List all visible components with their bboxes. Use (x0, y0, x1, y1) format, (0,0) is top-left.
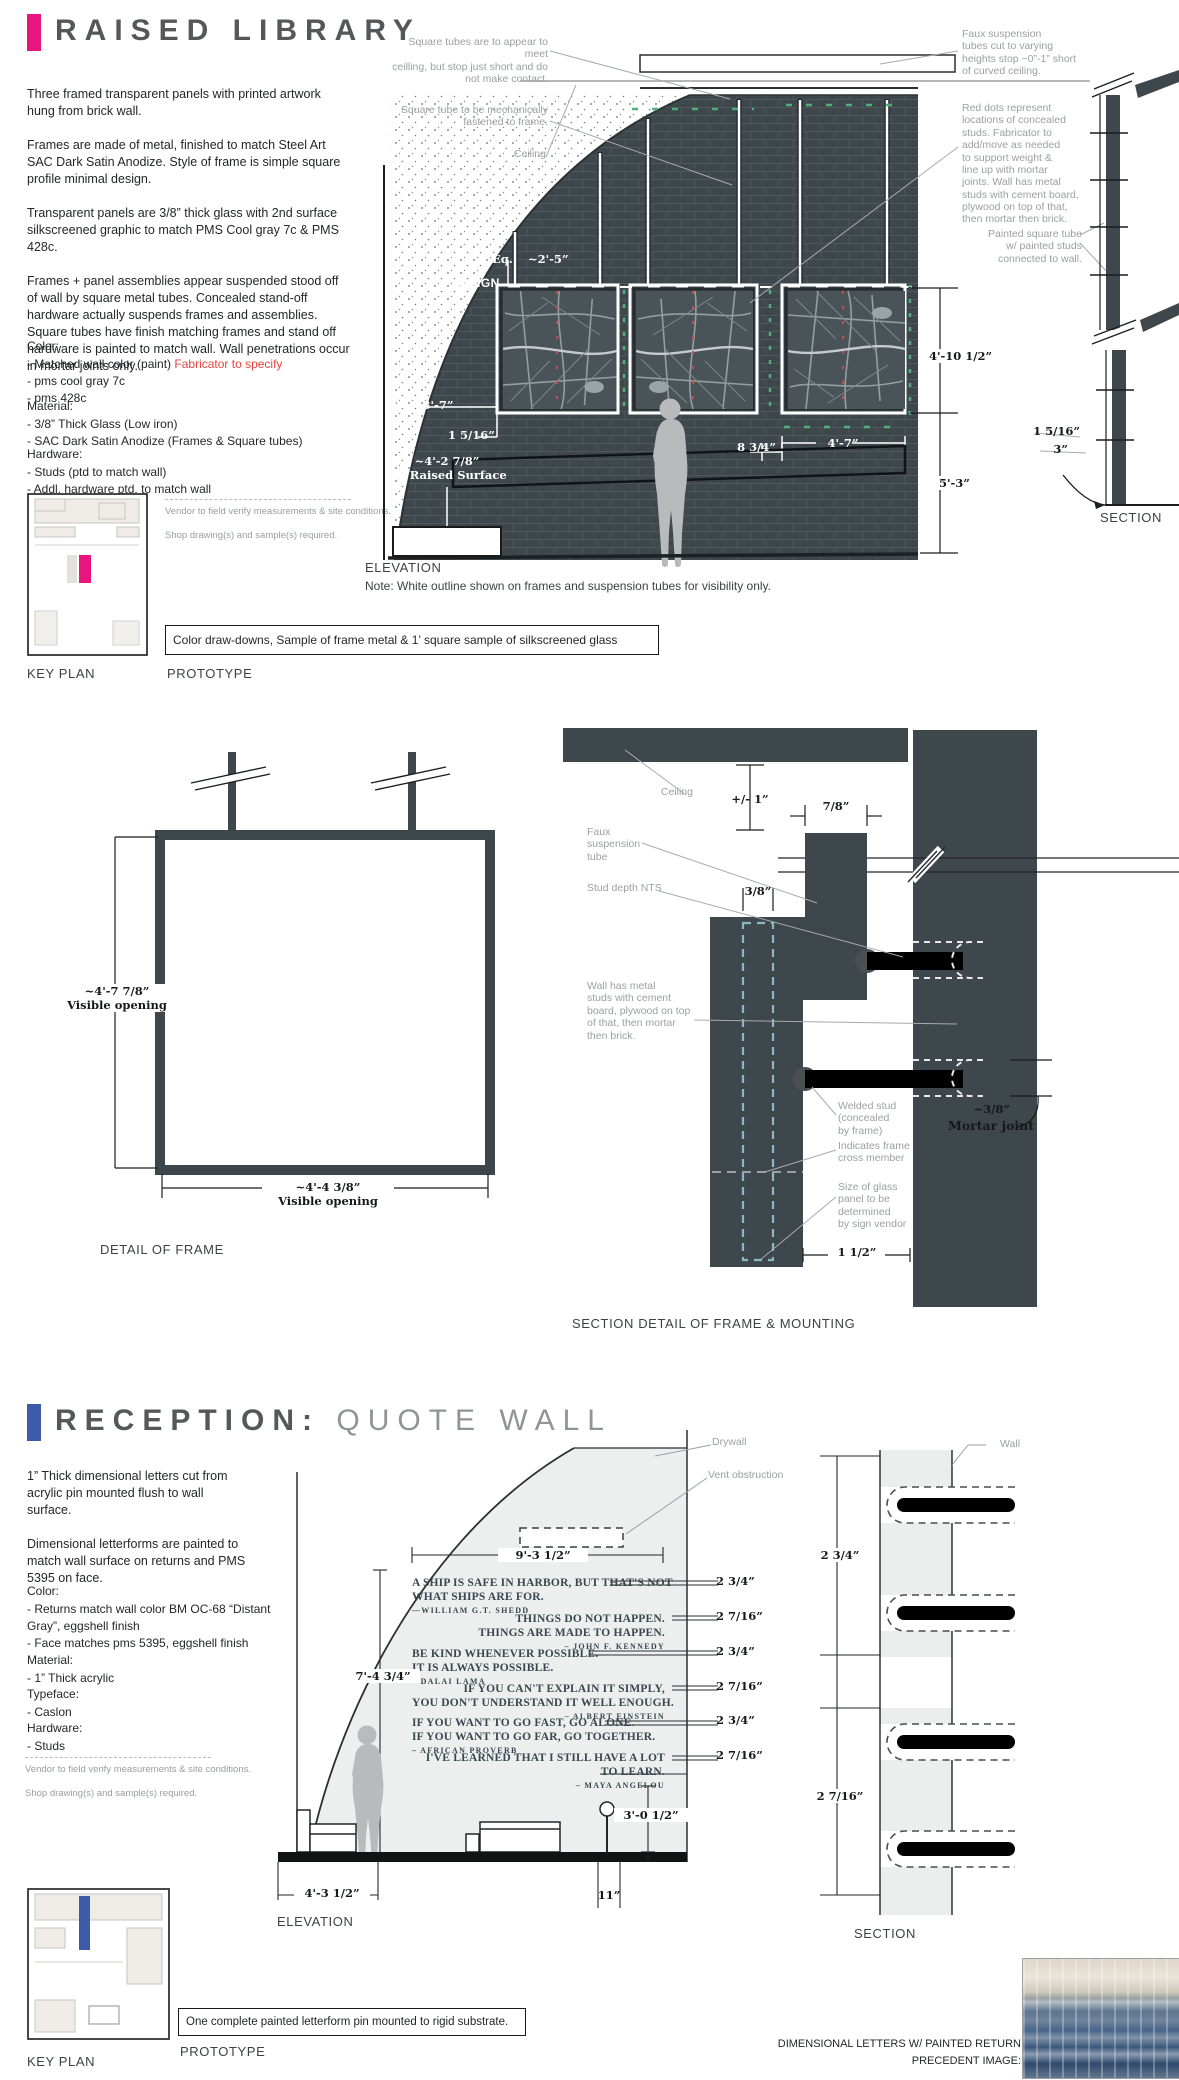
dim-text-height: 7'-4 3/4” (346, 1669, 420, 1683)
annotation-ceiling-2: Ceiling (648, 786, 693, 798)
dim-panel-width: 4'-7” (813, 436, 873, 450)
material-heading: Material: (27, 398, 357, 415)
precedent-caption: DIMENSIONAL LETTERS W/ PAINTED RETURN PR… (700, 2036, 1021, 2069)
quote-height-dim: 2 7/16” (716, 1748, 763, 1762)
material-spec-2: Material: - 1” Thick acrylic (27, 1652, 277, 1687)
vendor-note: Shop drawing(s) and sample(s) required. (25, 1788, 197, 1799)
color-heading: Color: (27, 338, 357, 355)
quote-3: BE KIND WHENEVER POSSIBLE. IT IS ALWAYS … (412, 1647, 665, 1686)
prototype-label-2: PROTOTYPE (180, 2044, 265, 2059)
prototype-label: PROTOTYPE (167, 666, 252, 681)
color-spec: Color: - Matched wall color (paint) Fabr… (27, 338, 357, 407)
annotation-painted-tube: Painted square tube w/ painted studs con… (950, 228, 1082, 265)
elevation-label: ELEVATION (365, 560, 441, 575)
dim-right-width: 11” (594, 1888, 624, 1902)
annotation-faux-tubes: Faux suspension tubes cut to varying hei… (962, 28, 1092, 78)
quote-height-dim: 2 7/16” (716, 1679, 763, 1693)
key-plan-label: KEY PLAN (27, 666, 95, 681)
hardware-item: - Studs (ptd to match wall) (27, 464, 357, 481)
description-paragraph: Dimensional letterforms are painted to m… (27, 1536, 247, 1587)
quote-6: I'VE LEARNED THAT I STILL HAVE A LOT TO … (412, 1751, 665, 1790)
dim-gap: +/- 1” (722, 792, 778, 806)
quote-2: THINGS DO NOT HAPPEN. THINGS ARE MADE TO… (412, 1612, 665, 1651)
dim-tube: 7/8” (810, 799, 862, 813)
color-item: - Matched wall color (paint) Fabricator … (27, 356, 357, 373)
dim-section-depth: 3” (1038, 442, 1068, 456)
mortar-joint-label: Mortar joint (948, 1118, 1020, 1133)
description-paragraph: Frames are made of metal, finished to ma… (27, 137, 351, 188)
divider (165, 499, 351, 500)
frame-cut (710, 917, 803, 1267)
color-item: - pms cool gray 7c (27, 373, 357, 390)
floor-bar (278, 1852, 687, 1862)
quote-height-dim: 2 3/4” (716, 1574, 755, 1588)
annotation-red-dots: Red dots represent locations of conceale… (962, 102, 1112, 226)
frame-outline (160, 835, 490, 1170)
dim-standoff: 1 5/16” (448, 428, 495, 442)
faux-tube-section (640, 55, 955, 72)
quote-5: IF YOU WANT TO GO FAST, GO ALONE. IF YOU… (412, 1716, 665, 1755)
spec-sheet-page: RAISED LIBRARY Three framed transparent … (0, 0, 1179, 2080)
page-title: RAISED LIBRARY (55, 14, 421, 48)
frame-width-dim: ~4'-4 3/8” Visible opening (262, 1180, 394, 1208)
annotation-ceiling: Ceiling (498, 148, 546, 160)
quote-height-dim: 2 7/16” (716, 1609, 763, 1623)
annotation-tubes-meet: Square tubes are to appear to meet ceill… (383, 36, 548, 86)
key-plan-drawing-2 (27, 1888, 170, 2040)
frame-height-dim: ~4'-7 7/8” Visible opening (53, 984, 181, 1012)
elevation-note: Note: White outline shown on frames and … (365, 579, 771, 593)
hardware-spec-2: Hardware: - Studs (27, 1720, 277, 1755)
key-plan-highlight (79, 555, 91, 583)
prototype-note-box-2: One complete painted letterform pin moun… (178, 2008, 526, 2036)
map-panel-1 (497, 285, 618, 413)
dim-raised-height: ~4'-2 7/8” On Raised Surface (385, 454, 509, 482)
quote-wall-section-drawing (800, 1435, 1070, 1945)
annotation-vent: Vent obstruction (708, 1469, 783, 1481)
fabricator-highlight: Fabricator to specify (174, 357, 282, 371)
quote-height-dim: 2 3/4” (716, 1713, 755, 1727)
key-plan-highlight-2 (79, 1896, 90, 1950)
faux-tube-cut (805, 833, 867, 917)
description-paragraph: Transparent panels are 3/8” thick glass … (27, 205, 351, 256)
dim-floor-height: 5'-3” (936, 476, 973, 490)
section-label: SECTION (1100, 510, 1162, 525)
wall-section (913, 730, 1037, 1307)
dim-tube-gap: ~2'-5” (528, 252, 569, 266)
section-accent-bar (27, 14, 41, 51)
dim-standoff-2: 1 1/2” (826, 1245, 888, 1259)
hardware-spec: Hardware: - Studs (ptd to match wall) - … (27, 446, 357, 498)
hardware-heading: Hardware: (27, 446, 357, 463)
vendor-note: Vendor to field verify measurements & si… (25, 1764, 251, 1775)
annotation-welded-stud: Welded stud (concealed by frame) (838, 1100, 918, 1137)
dim-section-bottom: 2 7/16” (808, 1789, 872, 1803)
precedent-photo (1022, 1958, 1179, 2079)
dim-left-width: 4'-3 1/2” (294, 1886, 370, 1900)
key-plan-label-2: KEY PLAN (27, 2054, 95, 2069)
dim-bottom-height: 3'-0 1/2” (614, 1808, 688, 1822)
quote-height-dim: 2 3/4” (716, 1644, 755, 1658)
material-item: - 3/8” Thick Glass (Low iron) (27, 416, 357, 433)
quote-1: A SHIP IS SAFE IN HARBOR, BUT THAT'S NOT… (412, 1576, 665, 1615)
vent-obstruction-dashed (520, 1528, 623, 1547)
map-panel-2 (630, 285, 757, 413)
dim-panel-height: 4'-10 1/2” (926, 349, 995, 363)
mount-detail-label: SECTION DETAIL OF FRAME & MOUNTING (572, 1316, 855, 1331)
description-paragraph: Three framed transparent panels with pri… (27, 86, 351, 120)
annotation-cross-member: Indicates frame cross member (838, 1140, 934, 1165)
annotation-wall: Wall (1000, 1438, 1020, 1450)
dim-section-top: 2 3/4” (812, 1548, 868, 1562)
dim-left-offset: 3'-7” (408, 398, 468, 412)
section-label-2: SECTION (854, 1926, 916, 1941)
annotation-wall-construction: Wall has metal studs with cement board, … (587, 980, 707, 1042)
dim-section-standoff: 1 5/16” (1028, 424, 1080, 438)
vendor-note: Vendor to field verify measurements & si… (165, 506, 391, 517)
dim-eq: Eq. (492, 252, 513, 266)
description-paragraph: 1” Thick dimensional letters cut from ac… (27, 1468, 247, 1519)
vendor-note: Shop drawing(s) and sample(s) required. (165, 530, 337, 541)
annotation-stud-depth: Stud depth NTS (587, 882, 683, 894)
floor-box (393, 527, 501, 556)
typeface-spec: Typeface: - Caslon (27, 1686, 277, 1721)
annotation-glass-size: Size of glass panel to be determined by … (838, 1181, 928, 1231)
quote-4: IF YOU CAN'T EXPLAIN IT SIMPLY, YOU DON'… (412, 1682, 665, 1721)
divider (25, 1757, 211, 1758)
elevation-label-2: ELEVATION (277, 1914, 353, 1929)
dim-align: ALIGN (460, 276, 500, 290)
dim-wall-width: 9'-3 1/2” (498, 1548, 588, 1562)
frame-tubes (191, 752, 450, 835)
wall-leader (952, 1445, 986, 1465)
key-plan-drawing (27, 493, 148, 656)
annotation-tube-fastened: Square tube to be mechanically fastened … (398, 104, 548, 129)
prototype-note-box: Color draw-downs, Sample of frame metal … (165, 625, 659, 655)
material-spec: Material: - 3/8” Thick Glass (Low iron) … (27, 398, 357, 450)
dim-panel-gap: 8 3/4” (726, 440, 776, 454)
ceiling-slab (563, 728, 908, 762)
color-spec-2: Color: - Returns match wall color BM OC-… (27, 1583, 277, 1652)
frame-detail-label: DETAIL OF FRAME (100, 1242, 224, 1257)
section-accent-bar-2 (27, 1404, 41, 1441)
map-panel-3 (782, 285, 905, 413)
dim-mortar: ~3/8” (958, 1102, 1010, 1116)
annotation-faux-tube: Faux suspension tube (587, 826, 671, 863)
dim-glass: 3/8” (732, 884, 784, 898)
annotation-drywall: Drywall (712, 1436, 746, 1448)
